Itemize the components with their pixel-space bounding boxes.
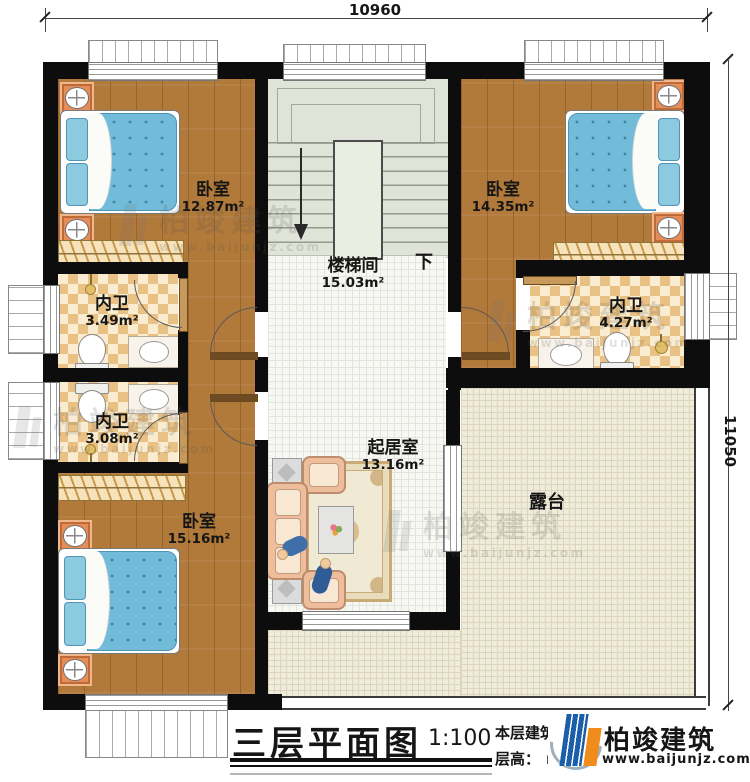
room-name: 卧室 — [139, 512, 259, 532]
terrace-railing — [694, 388, 710, 706]
room-label-stairwell: 楼梯间 15.03m² — [293, 256, 413, 292]
watermark-url: www.baijunjz.com — [423, 546, 586, 560]
brand-logo-icon — [9, 404, 49, 450]
window-band — [283, 62, 426, 81]
wall — [43, 262, 178, 274]
wall — [516, 260, 684, 276]
lamp-icon — [65, 87, 89, 109]
room-label-bath-left-bottom: 内卫 3.08m² — [72, 412, 152, 448]
dimension-line-right — [728, 60, 729, 711]
pillow — [64, 556, 86, 600]
sink-bowl — [139, 341, 169, 363]
nightstand — [58, 654, 92, 686]
room-area: 3.08m² — [72, 432, 152, 448]
stair-treads-right — [379, 142, 448, 256]
wall — [43, 462, 178, 473]
sink-counter — [128, 336, 180, 368]
person-head — [277, 549, 288, 560]
room-area: 15.03m² — [293, 276, 413, 292]
room-label-bedroom-tl: 卧室 12.87m² — [153, 180, 273, 216]
lamp-icon — [63, 525, 87, 547]
brand-logo-icon — [115, 202, 155, 248]
pillow — [64, 602, 86, 646]
window — [8, 285, 45, 354]
cushion — [309, 463, 339, 487]
room-area: 4.27m² — [586, 316, 666, 332]
lamp-icon — [63, 659, 87, 681]
window — [85, 710, 228, 758]
room-area: 15.16m² — [139, 532, 259, 548]
brand-url: www.baijunjz.com — [602, 752, 750, 767]
pillow — [658, 118, 680, 161]
room-label-bath-right: 内卫 4.27m² — [586, 296, 666, 332]
note-height: 层高： — [495, 748, 540, 769]
stair-down-label: 下 — [410, 252, 438, 273]
table-decor — [277, 463, 295, 481]
lamp-icon — [657, 85, 681, 107]
stair-landing-outline-inner — [291, 104, 421, 144]
pillow — [66, 163, 88, 206]
window — [708, 273, 737, 340]
sofa — [266, 482, 308, 580]
room-name: 内卫 — [72, 412, 152, 432]
table-decor — [277, 579, 295, 597]
plan-scale: 1:100 — [428, 726, 491, 751]
dimension-label-top: 10960 — [330, 1, 420, 19]
wall — [446, 390, 460, 445]
dimension-ext — [45, 8, 46, 32]
title-underline-2 — [230, 765, 492, 767]
room-name: 起居室 — [343, 438, 443, 458]
room-label-bedroom-tr: 卧室 14.35m² — [443, 180, 563, 216]
wall — [408, 612, 460, 630]
room-area: 14.35m² — [443, 200, 563, 216]
brand-logo-icon — [548, 710, 602, 772]
room-name: 内卫 — [72, 294, 152, 314]
dimension-ext — [707, 8, 708, 32]
terrace-railing — [282, 696, 706, 710]
room-name: 卧室 — [443, 180, 563, 200]
room-area: 12.87m² — [153, 200, 273, 216]
brand-logo-icon — [379, 508, 419, 554]
wardrobe — [58, 475, 186, 501]
window-band — [524, 62, 664, 81]
title-underline — [230, 758, 492, 762]
cushion — [275, 489, 301, 516]
wall — [255, 440, 268, 710]
room-name: 卧室 — [153, 180, 273, 200]
terrace-floor-strip — [268, 630, 461, 696]
room-area: 3.49m² — [72, 314, 152, 330]
bed-sheet — [632, 113, 657, 209]
bed-bl — [58, 548, 180, 654]
brand-logo-icon — [483, 298, 523, 344]
room-label-bath-left-top: 内卫 3.49m² — [72, 294, 152, 330]
lamp-icon — [65, 219, 89, 241]
room-label-bedroom-bl: 卧室 15.16m² — [139, 512, 259, 548]
dimension-label-right: 11050 — [721, 411, 739, 471]
wall — [255, 612, 303, 630]
wall — [255, 357, 268, 392]
sliding-door — [302, 611, 410, 631]
wall — [446, 368, 708, 388]
lamp-icon — [657, 217, 681, 239]
floor-plan: 柏竣建筑 www.baijunjz.com 柏竣建筑 www.baijunjz.… — [0, 0, 750, 782]
flower-decor — [328, 522, 344, 538]
pillow — [658, 163, 680, 206]
watermark-url: www.baijunjz.com — [159, 240, 322, 254]
room-name: 楼梯间 — [293, 256, 413, 276]
bed-tr — [565, 110, 685, 214]
armchair — [302, 456, 346, 494]
person-head — [320, 558, 331, 569]
room-area: 13.16m² — [343, 458, 443, 474]
coffee-table — [318, 506, 354, 554]
room-name: 内卫 — [586, 296, 666, 316]
stair-well — [333, 140, 383, 260]
wall — [43, 368, 178, 382]
room-label-terrace: 露台 — [507, 492, 587, 513]
pillow — [66, 118, 88, 161]
title-underline-gray — [230, 773, 492, 775]
room-label-living: 起居室 13.16m² — [343, 438, 443, 474]
window-band — [43, 285, 60, 354]
watermark-url: www.baijunjz.com — [527, 336, 690, 350]
nightstand — [652, 212, 686, 244]
wall — [178, 262, 188, 278]
window-band — [88, 62, 218, 81]
nightstand — [652, 80, 686, 112]
